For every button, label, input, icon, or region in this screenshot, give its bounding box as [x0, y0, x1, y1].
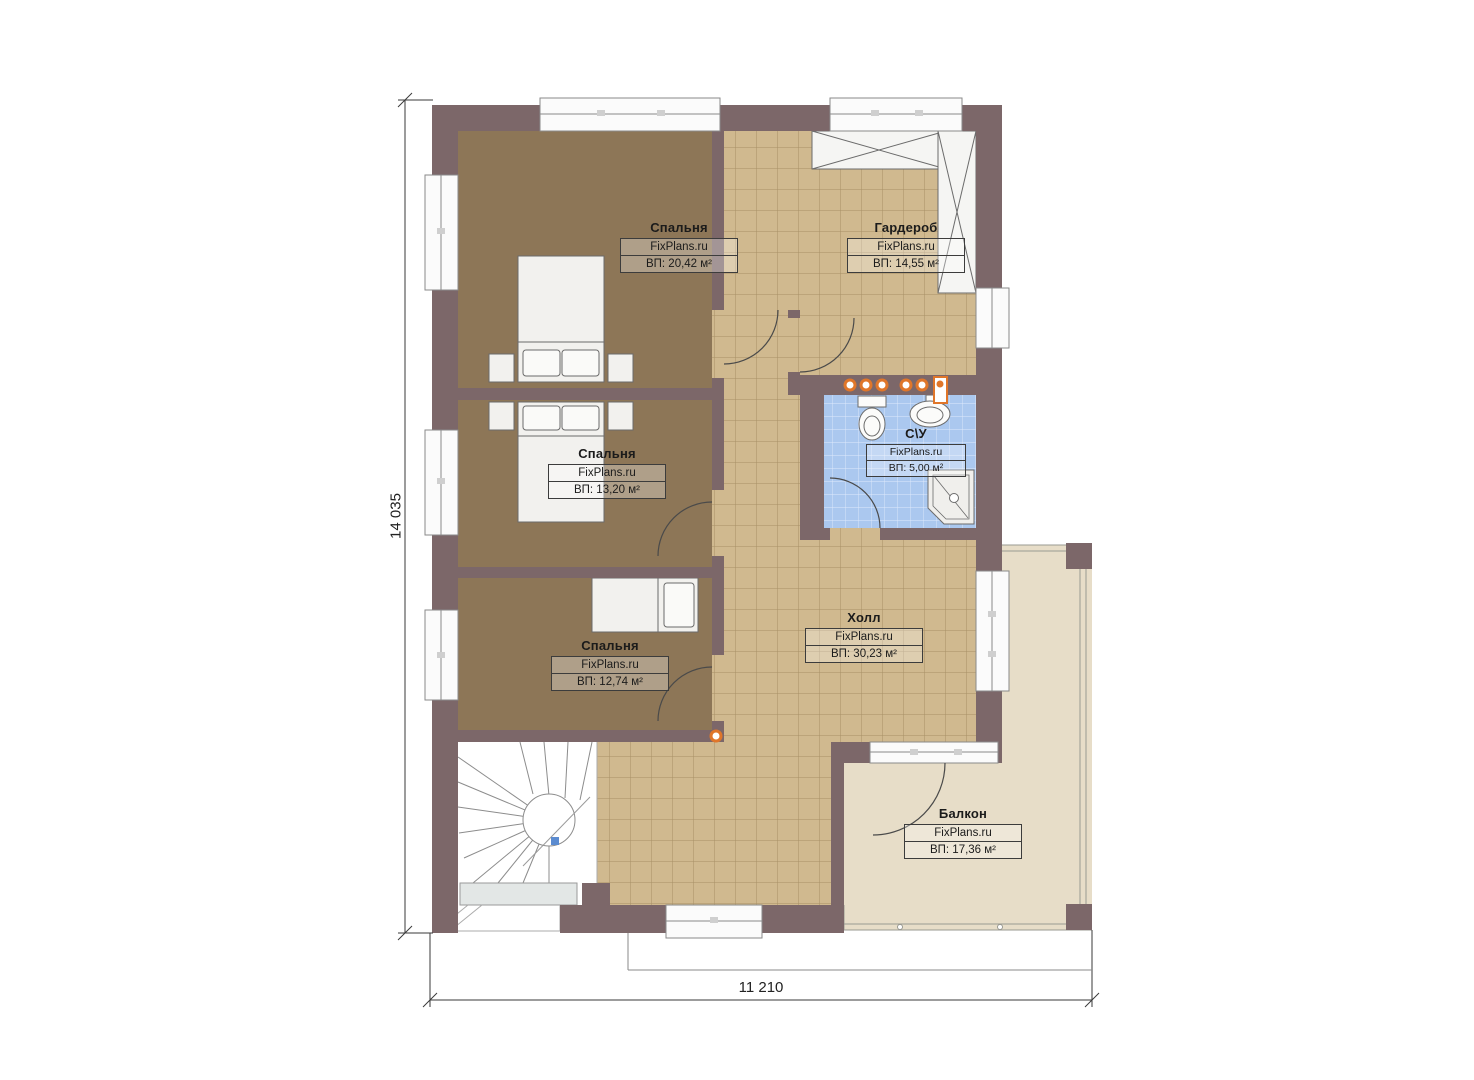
- window: [976, 571, 1009, 691]
- room-label-bedroom-2: Спальня FixPlans.ru ВП: 13,20 м²: [548, 446, 666, 499]
- room-label-bedroom-1: Спальня FixPlans.ru ВП: 20,42 м²: [620, 220, 738, 273]
- floor-plan-drawing: [0, 0, 1474, 1080]
- single-bed: [592, 578, 698, 632]
- window: [976, 288, 1009, 348]
- window: [425, 610, 458, 700]
- window: [425, 175, 458, 290]
- room-name: Спальня: [548, 446, 666, 461]
- room-info-box: FixPlans.ru ВП: 17,36 м²: [904, 824, 1022, 859]
- nightstand: [608, 354, 633, 382]
- nightstand: [489, 402, 514, 430]
- room-info-box: FixPlans.ru ВП: 5,00 м²: [866, 444, 966, 477]
- balcony-pillar: [1066, 904, 1092, 930]
- room-area: ВП: 20,42 м²: [621, 255, 737, 272]
- brand-watermark: FixPlans.ru: [549, 465, 665, 481]
- hall-lower-floor: [597, 742, 831, 905]
- room-info-box: FixPlans.ru ВП: 30,23 м²: [805, 628, 923, 663]
- room-label-wardrobe: Гардероб FixPlans.ru ВП: 14,55 м²: [847, 220, 965, 273]
- room-name: Гардероб: [847, 220, 965, 235]
- room-name: С\У: [866, 426, 966, 441]
- brand-watermark: FixPlans.ru: [867, 445, 965, 460]
- room-area: ВП: 5,00 м²: [867, 460, 965, 476]
- brand-watermark: FixPlans.ru: [621, 239, 737, 255]
- nightstand: [489, 354, 514, 382]
- room-name: Спальня: [551, 638, 669, 653]
- room-area: ВП: 13,20 м²: [549, 481, 665, 498]
- floor-plan-page: Спальня FixPlans.ru ВП: 20,42 м² Гардеро…: [0, 0, 1474, 1080]
- balcony-door-window: [870, 742, 998, 763]
- corridor-riser: [711, 731, 721, 741]
- room-label-bedroom-3: Спальня FixPlans.ru ВП: 12,74 м²: [551, 638, 669, 691]
- room-info-box: FixPlans.ru ВП: 14,55 м²: [847, 238, 965, 273]
- window: [666, 905, 762, 938]
- brand-watermark: FixPlans.ru: [552, 657, 668, 673]
- room-name: Спальня: [620, 220, 738, 235]
- dimension-width-label: 11 210: [739, 979, 784, 996]
- towel-radiator: [934, 377, 947, 403]
- room-info-box: FixPlans.ru ВП: 12,74 м²: [551, 656, 669, 691]
- room-label-balcony: Балкон FixPlans.ru ВП: 17,36 м²: [904, 806, 1022, 859]
- room-info-box: FixPlans.ru ВП: 20,42 м²: [620, 238, 738, 273]
- window: [425, 430, 458, 535]
- stair-landing: [460, 883, 577, 905]
- room-name: Холл: [805, 610, 923, 625]
- room-area: ВП: 30,23 м²: [806, 645, 922, 662]
- brand-watermark: FixPlans.ru: [848, 239, 964, 255]
- room-label-bathroom: С\У FixPlans.ru ВП: 5,00 м²: [866, 426, 966, 477]
- balcony-pillar: [1066, 543, 1092, 569]
- room-info-box: FixPlans.ru ВП: 13,20 м²: [548, 464, 666, 499]
- brand-watermark: FixPlans.ru: [806, 629, 922, 645]
- dimension-height-label: 14 035: [388, 493, 405, 539]
- wardrobe-cabinet-top: [812, 131, 946, 169]
- room-name: Балкон: [904, 806, 1022, 821]
- window: [830, 98, 962, 131]
- stair-marker: [551, 837, 559, 845]
- room-label-hall: Холл FixPlans.ru ВП: 30,23 м²: [805, 610, 923, 663]
- room-area: ВП: 14,55 м²: [848, 255, 964, 272]
- brand-watermark: FixPlans.ru: [905, 825, 1021, 841]
- room-area: ВП: 17,36 м²: [905, 841, 1021, 858]
- room-area: ВП: 12,74 м²: [552, 673, 668, 690]
- nightstand: [608, 402, 633, 430]
- window: [540, 98, 720, 131]
